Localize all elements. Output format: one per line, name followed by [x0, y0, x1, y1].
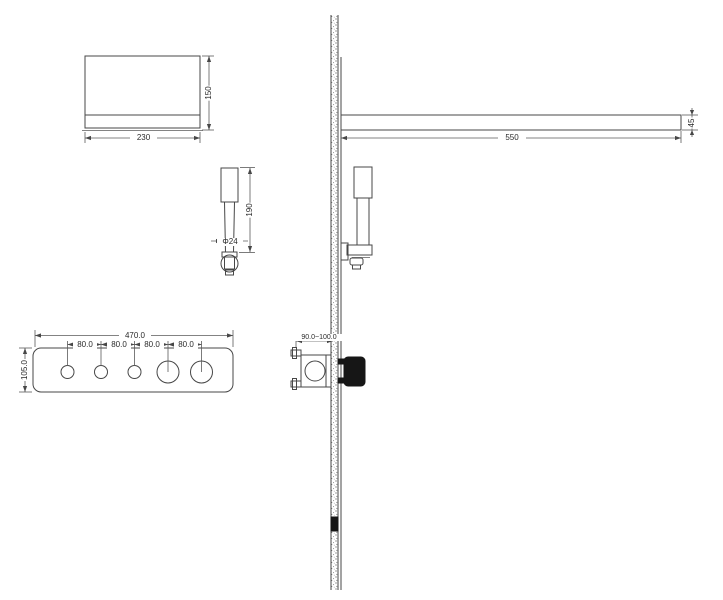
dim-label-head-width: 230 [130, 134, 157, 142]
shower-head-front-view [82, 56, 203, 131]
dim-label-hand-shower-length: 190 [246, 202, 254, 217]
dim-label-panel-spacing-3: 80.0 [140, 341, 164, 349]
shower-head-dimension-lines [85, 56, 214, 143]
dim-label-panel-spacing-4: 80.0 [174, 341, 198, 349]
dim-label-arm-end: 45 [688, 117, 696, 128]
valve-handle-knob [344, 357, 365, 386]
wall-section [331, 15, 341, 590]
hand-shower-front-view [221, 168, 238, 275]
panel-knob-small-3 [128, 366, 141, 379]
dim-label-panel-height: 105.0 [21, 359, 29, 381]
dim-label-hand-shower-diameter: Φ24 [217, 238, 243, 246]
dim-label-valve-depth: 90.0~100.0 [294, 334, 344, 341]
dim-label-arm-length: 550 [498, 134, 526, 142]
dim-label-panel-width: 470.0 [119, 332, 151, 340]
panel-knob-small-1 [61, 366, 74, 379]
dim-label-head-height: 150 [205, 85, 213, 100]
dim-label-panel-spacing-1: 80.0 [73, 341, 97, 349]
dim-label-panel-spacing-2: 80.0 [107, 341, 131, 349]
valve-side-view [291, 348, 365, 390]
wall-pipe-section [331, 517, 338, 531]
drawing-linework [0, 0, 723, 600]
shower-arm-side-view [341, 115, 681, 130]
control-panel-view [33, 348, 233, 392]
technical-drawing: 230 150 190 Φ24 470.0 80.0 80.0 80.0 80.… [0, 0, 723, 600]
panel-knob-small-2 [95, 366, 108, 379]
hand-shower-side-view [341, 167, 372, 269]
